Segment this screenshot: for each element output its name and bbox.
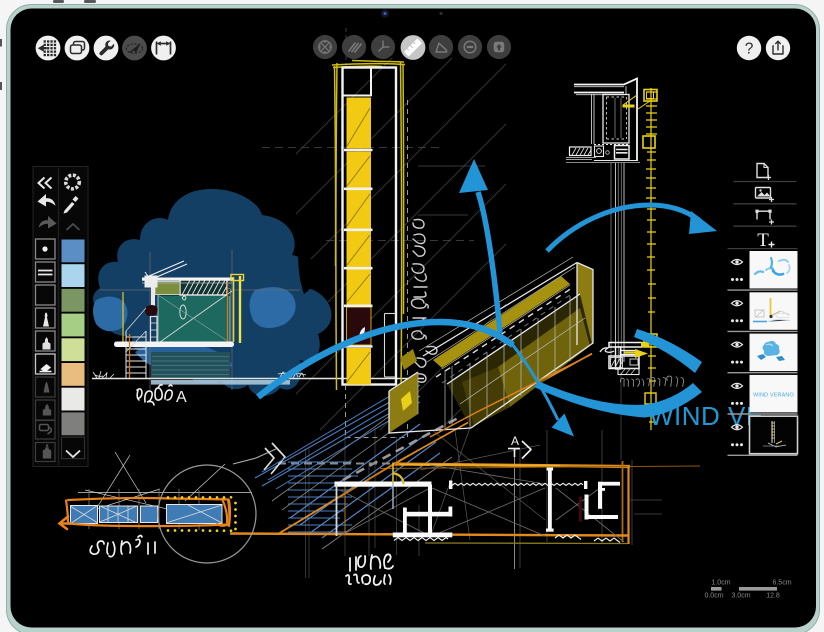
svg-text:12.8: 12.8	[766, 593, 780, 600]
svg-text:0.0cm: 0.0cm	[704, 593, 723, 600]
svg-text:A: A	[176, 389, 187, 406]
svg-text:6.5cm: 6.5cm	[772, 580, 791, 587]
svg-text:?: ?	[745, 41, 754, 58]
svg-text:T: T	[757, 230, 769, 251]
svg-text:WIND VERANO: WIND VERANO	[753, 393, 794, 399]
svg-text:1.0cm: 1.0cm	[711, 580, 730, 587]
svg-text:3.0cm: 3.0cm	[731, 593, 750, 600]
svg-text:WIND VE: WIND VE	[649, 401, 764, 431]
svg-text:A: A	[511, 434, 519, 448]
